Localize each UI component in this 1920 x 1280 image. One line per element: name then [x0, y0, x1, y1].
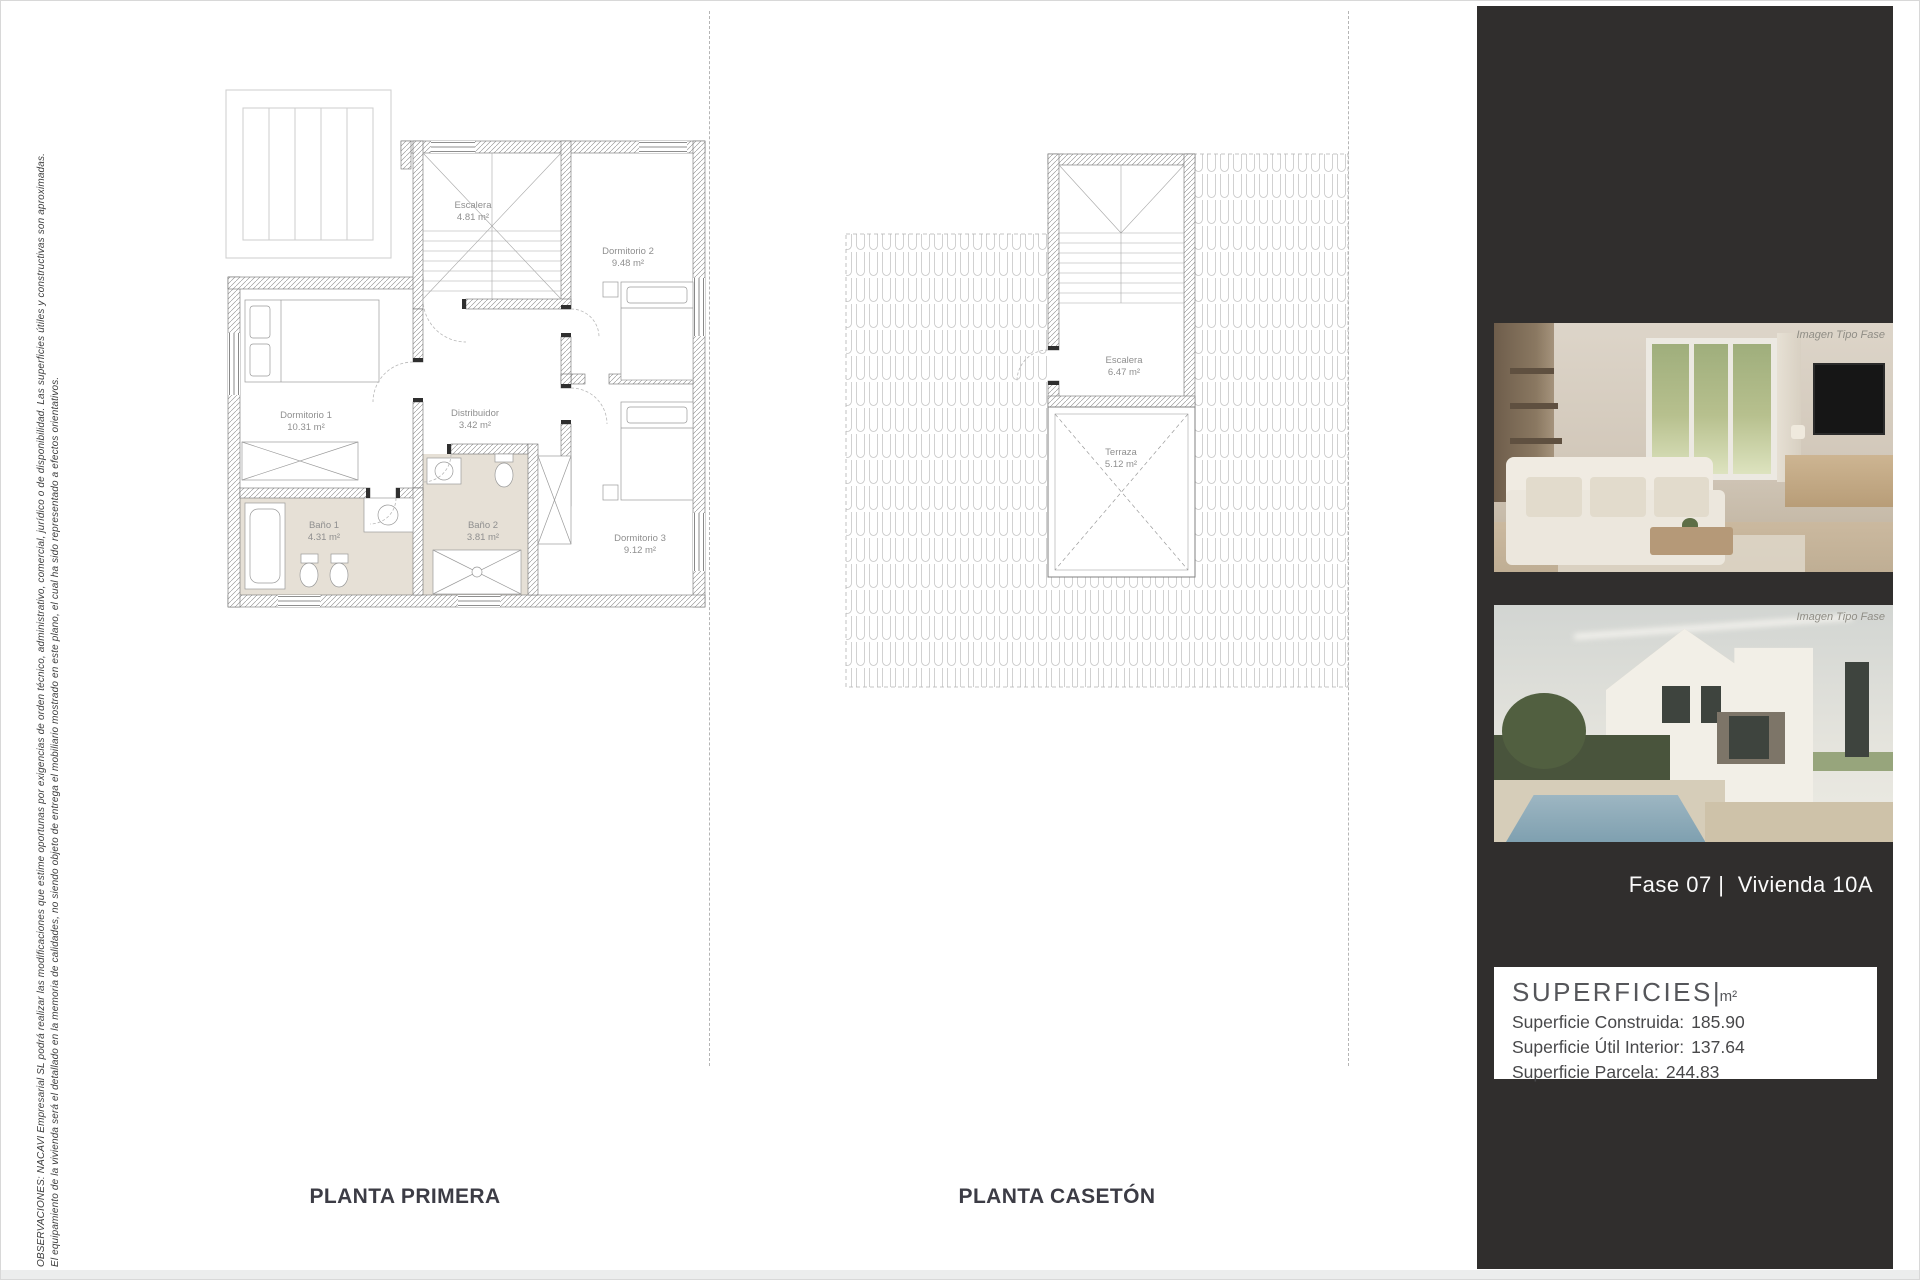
wood-sideboard	[1785, 455, 1893, 507]
room-label-bano-1: Baño 1	[309, 520, 339, 531]
image-caption: Imagen Tipo Fase	[1796, 611, 1885, 623]
room-area-dormitorio-2: 9.48 m²	[612, 258, 644, 269]
tall-window	[1845, 662, 1869, 757]
window-mullion	[1689, 344, 1694, 474]
render-image-living-room: Imagen Tipo Fase	[1494, 323, 1893, 572]
house-window	[1662, 686, 1690, 724]
image-caption: Imagen Tipo Fase	[1796, 329, 1885, 341]
plan-title-planta-caseton: PLANTA CASETÓN	[907, 1185, 1207, 1209]
round-tree	[1502, 693, 1586, 769]
disclaimer-vertical-text: OBSERVACIONES: NACAVI Empresarial SL pod…	[35, 15, 63, 1267]
stair-step	[1510, 438, 1562, 444]
gravel-ground	[1705, 802, 1893, 842]
room-label-dormitorio-2: Dormitorio 2	[602, 246, 654, 257]
project-label: Fase 07 | Vivienda 10A	[1477, 872, 1873, 898]
render-image-house-exterior: Imagen Tipo Fase	[1494, 605, 1893, 842]
room-area-terraza: 5.12 m²	[1105, 459, 1137, 470]
plan-title-planta-primera: PLANTA PRIMERA	[255, 1185, 555, 1209]
pergola-outline	[226, 90, 391, 258]
swimming-pool	[1506, 795, 1706, 842]
room-area-dormitorio-1: 10.31 m²	[287, 422, 325, 433]
room-area-dormitorio-3: 9.12 m²	[624, 545, 656, 556]
superficie-construida-row: Superficie Construida:185.90	[1512, 1012, 1863, 1033]
room-label-distribuidor: Distribuidor	[451, 408, 499, 419]
room-label-dormitorio-3: Dormitorio 3	[614, 533, 666, 544]
room-area-bano-1: 4.31 m²	[308, 532, 340, 543]
room-label-caseton-escalera: Escalera	[1106, 355, 1144, 366]
superficies-separator: |	[1713, 977, 1720, 1007]
room-area-escalera: 4.81 m²	[457, 212, 489, 223]
balcony-opening	[1729, 716, 1769, 759]
floor-plan-planta-caseton: Escalera 6.47 m² Terraza 5.12 m²	[841, 96, 1371, 701]
room-label-escalera: Escalera	[455, 200, 493, 211]
room-label-dormitorio-1: Dormitorio 1	[280, 410, 332, 421]
sofa-cushion	[1526, 477, 1582, 517]
window-mullion	[1728, 344, 1733, 474]
sofa-cushion	[1590, 477, 1646, 517]
floor-plan-planta-primera: Escalera 4.81 m² Dormitorio 2 9.48 m² Do…	[221, 86, 721, 626]
superficie-parcela-row: Superficie Parcela:244.83	[1512, 1062, 1863, 1083]
superficie-parcela-label: Superficie Parcela:	[1512, 1062, 1659, 1082]
superficie-parcela-value: 244.83	[1666, 1062, 1720, 1082]
superficie-util-value: 137.64	[1691, 1037, 1745, 1057]
room-area-caseton-escalera: 6.47 m²	[1108, 367, 1140, 378]
superficie-construida-label: Superficie Construida:	[1512, 1012, 1684, 1032]
superficies-panel: SUPERFICIES|m² Superficie Construida:185…	[1494, 967, 1877, 1079]
stair-symbol	[423, 153, 561, 299]
superficies-unit: m²	[1720, 988, 1738, 1005]
superficie-construida-value: 185.90	[1691, 1012, 1745, 1032]
table-lamp	[1791, 425, 1805, 439]
caseton-door-jambs	[1048, 346, 1059, 385]
disclaimer-line-2: El equipamiento de la vivienda será el d…	[49, 15, 63, 1267]
wall-tv	[1813, 363, 1885, 435]
stair-step	[1510, 403, 1558, 409]
superficies-title: SUPERFICIES	[1512, 977, 1713, 1007]
stair-step	[1510, 368, 1554, 374]
room-area-distribuidor: 3.42 m²	[459, 420, 491, 431]
superficie-util-label: Superficie Útil Interior:	[1512, 1037, 1684, 1057]
room-area-bano-2: 3.81 m²	[467, 532, 499, 543]
superficies-title-row: SUPERFICIES|m²	[1512, 977, 1863, 1008]
room-label-terraza: Terraza	[1105, 447, 1137, 458]
plan-sheet-page: OBSERVACIONES: NACAVI Empresarial SL pod…	[0, 0, 1920, 1280]
coffee-table	[1650, 527, 1734, 554]
info-sidebar: Imagen Tipo Fase Imagen Tipo Fase Fase 0…	[1477, 6, 1893, 1269]
room-label-bano-2: Baño 2	[468, 520, 498, 531]
sofa-cushion	[1654, 477, 1710, 517]
superficie-util-row: Superficie Útil Interior:137.64	[1512, 1037, 1863, 1058]
disclaimer-line-1: OBSERVACIONES: NACAVI Empresarial SL pod…	[35, 15, 49, 1267]
terraza-parapet	[1048, 407, 1195, 577]
page-bottom-edge	[1, 1270, 1919, 1279]
